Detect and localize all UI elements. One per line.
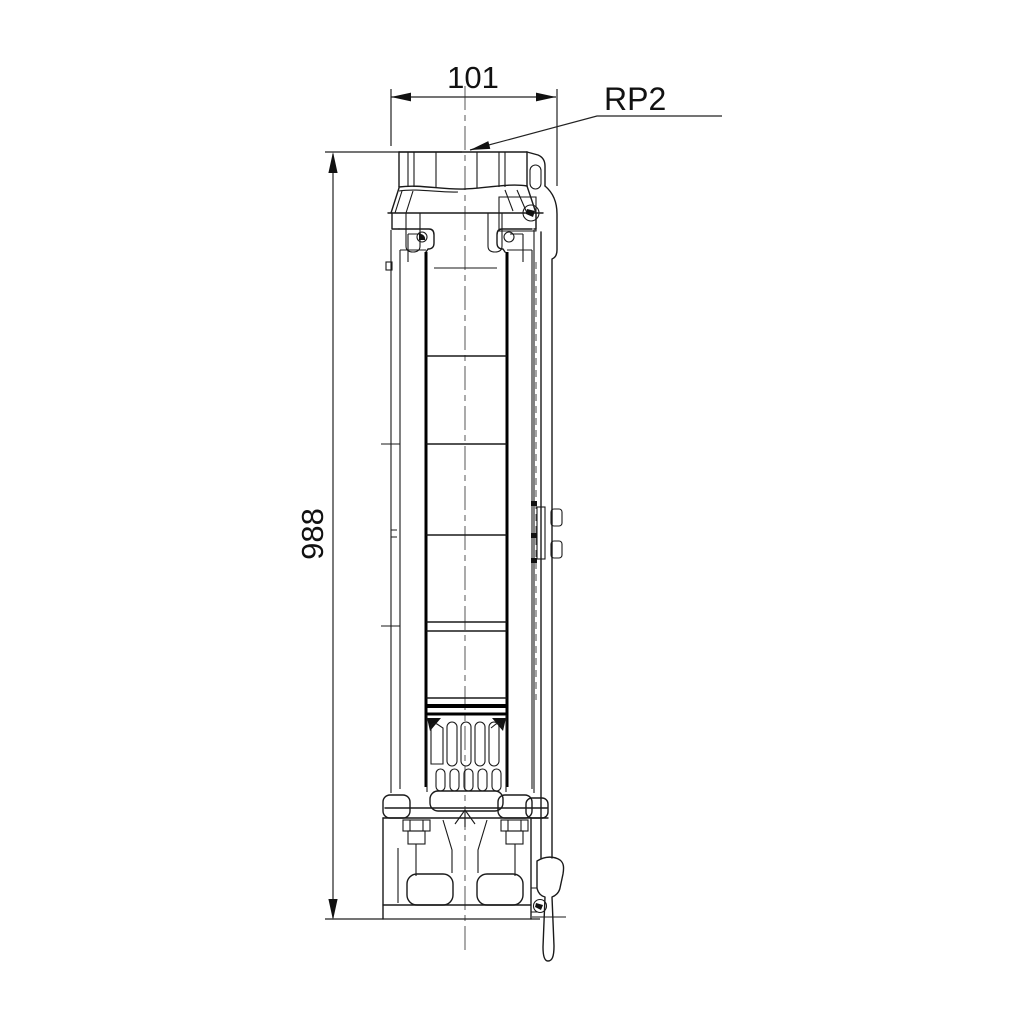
pump-body-shell <box>381 230 534 793</box>
pump-technical-drawing: 101 RP2 988 <box>0 0 1024 1024</box>
clamp-bolt-left <box>403 820 430 876</box>
horizontal-dimension: 101 <box>391 60 557 186</box>
connection-thread-label: RP2 <box>604 81 666 117</box>
clamp-bolt-right <box>501 820 528 876</box>
motor-body <box>383 818 531 919</box>
height-dimension-value: 988 <box>295 508 330 560</box>
stage-separators <box>427 356 506 631</box>
drawing-sheet: 101 RP2 988 <box>0 0 1024 1024</box>
suction-strainer <box>427 698 506 811</box>
thread-connection-annotation: RP2 <box>470 81 722 150</box>
cable-guard-end <box>531 857 566 961</box>
width-dimension-value: 101 <box>447 60 499 95</box>
